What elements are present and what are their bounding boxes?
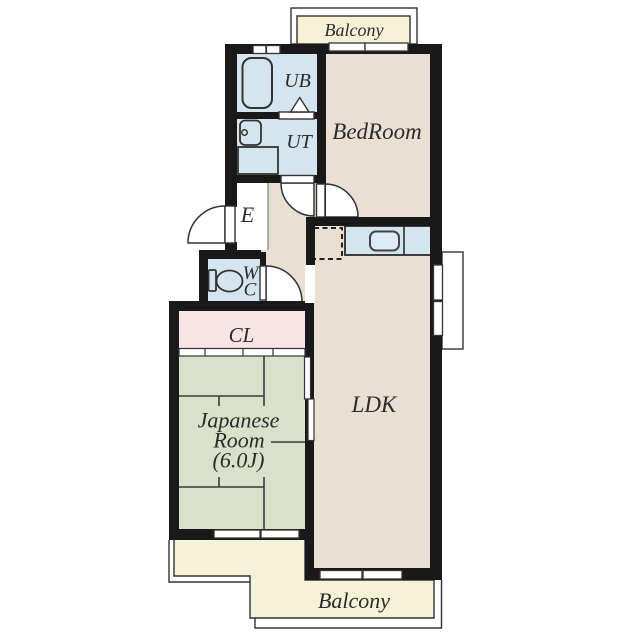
svg-text:CL: CL [229, 323, 255, 347]
svg-text:UB: UB [284, 70, 311, 92]
svg-text:C: C [244, 280, 257, 301]
svg-text:Balcony: Balcony [318, 588, 390, 613]
svg-text:LDK: LDK [351, 392, 398, 417]
svg-text:E: E [240, 202, 255, 227]
svg-text:BedRoom: BedRoom [332, 119, 421, 144]
svg-text:Balcony: Balcony [325, 20, 384, 40]
svg-text:(6.0J): (6.0J) [213, 448, 265, 473]
svg-text:UT: UT [286, 131, 313, 153]
